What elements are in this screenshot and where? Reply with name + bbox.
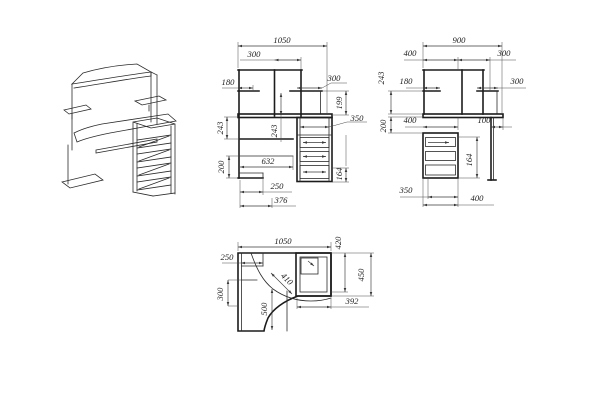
dim-arrowhead [344, 288, 347, 292]
dim-label: 180 [400, 76, 414, 86]
drawing-line [96, 139, 157, 153]
dim-arrowhead [390, 129, 393, 133]
dim-label: 243 [269, 125, 279, 138]
dim-label: 410 [279, 271, 296, 288]
isometric-view [55, 55, 205, 205]
dim-arrowhead [227, 280, 230, 284]
dim-arrowhead [390, 110, 393, 114]
dim-arrowhead [454, 126, 458, 129]
iso-drawer-pedestal [133, 118, 175, 196]
dim-label: 350 [399, 185, 414, 195]
dim-arrowhead [280, 93, 283, 97]
drawing-line [153, 193, 175, 196]
dim-arrowhead [423, 59, 427, 62]
dim-arrowhead [271, 289, 274, 293]
dim-label: 164 [334, 167, 344, 181]
iso-hutch [72, 64, 157, 150]
dim-arrowhead [344, 253, 347, 257]
front-dimensions [222, 42, 367, 208]
dim-arrowhead [228, 174, 231, 178]
front-view: 1050 300 180 300 199 350 243 243 632 200… [200, 25, 375, 225]
dim-arrowhead [227, 302, 230, 306]
dim-label: 900 [453, 35, 467, 45]
dim-arrowhead [297, 59, 301, 62]
dim-label: 300 [497, 48, 512, 58]
dim-arrowhead [322, 171, 326, 174]
drawing-line [426, 165, 456, 175]
dim-arrowhead [325, 126, 329, 129]
dim-label: 450 [356, 268, 366, 282]
dim-arrowhead [318, 87, 322, 90]
dim-label: 300 [510, 76, 525, 86]
dim-arrowhead [390, 91, 393, 95]
drawing-line [72, 64, 151, 84]
blueprint-page: 1050 300 180 300 199 350 243 243 632 200… [0, 0, 600, 400]
dim-arrowhead [370, 292, 373, 296]
drawing-line [74, 114, 176, 142]
drawing-line [301, 258, 318, 274]
dim-arrowhead [345, 111, 348, 115]
dim-label: 300 [215, 287, 225, 302]
dim-label: 200 [378, 119, 388, 133]
dim-arrowhead [300, 126, 304, 129]
drawing-line [426, 152, 456, 161]
dim-arrowhead [499, 126, 503, 129]
dim-label: 1050 [274, 236, 292, 246]
dim-arrowhead [390, 117, 393, 121]
dim-arrowhead [423, 204, 427, 207]
drawing-line [135, 96, 166, 105]
dim-arrowhead [327, 306, 331, 309]
dim-arrowhead [238, 246, 242, 249]
dim-label: 100 [478, 115, 492, 125]
dim-arrowhead [297, 306, 301, 309]
dim-arrowhead [259, 191, 263, 194]
dim-arrowhead [297, 87, 301, 90]
dim-label: 392 [345, 296, 360, 306]
dim-arrowhead [271, 326, 274, 330]
drawing-line [300, 257, 327, 292]
drawing-line [64, 105, 91, 114]
drawing-line [133, 118, 175, 128]
dim-arrowhead [476, 137, 479, 141]
dim-arrowhead [226, 117, 229, 121]
dim-arrowhead [458, 59, 462, 62]
dim-label: 400 [471, 193, 485, 203]
dim-arrowhead [345, 168, 348, 172]
dim-arrowhead [423, 126, 427, 129]
dim-label: 243 [376, 72, 386, 85]
dim-arrowhead [228, 156, 231, 160]
dim-arrowhead [240, 205, 244, 208]
dim-arrowhead [268, 205, 272, 208]
side-view: 900 400 300 243 180 300 400 100 200 164 … [375, 25, 540, 225]
drawing-line [426, 138, 456, 147]
dim-arrowhead [494, 87, 498, 90]
dim-label: 400 [404, 115, 418, 125]
dim-arrowhead [370, 253, 373, 257]
drawing-line [151, 72, 157, 75]
dim-label: 420 [333, 236, 343, 250]
dim-arrowhead [486, 59, 490, 62]
dim-label: 199 [334, 96, 344, 110]
drawing-line [133, 192, 153, 196]
dim-arrowhead [345, 91, 348, 95]
drawing-line [423, 133, 458, 178]
dim-arrowhead [477, 87, 481, 90]
plan-view: 1050 250 300 500 410 420 450 392 [205, 228, 390, 373]
dim-arrowhead [226, 135, 229, 139]
dim-arrowhead [275, 59, 279, 62]
front-labels: 1050 300 180 300 199 350 243 243 632 200… [215, 35, 364, 205]
dim-arrowhead [323, 45, 327, 48]
dim-label: 376 [274, 195, 289, 205]
side-drawing [423, 70, 503, 180]
dim-arrowhead [436, 87, 440, 90]
plan-dimensions [222, 242, 374, 330]
dim-label: 243 [215, 122, 225, 135]
dim-arrowhead [445, 141, 449, 144]
dim-label: 350 [350, 113, 365, 123]
dim-label: 164 [464, 153, 474, 167]
dim-label: 300 [327, 73, 342, 83]
dim-arrowhead [454, 59, 458, 62]
dim-label: 632 [262, 156, 276, 166]
dim-label: 1050 [273, 35, 291, 45]
dim-label: 250 [221, 252, 235, 262]
dim-arrowhead [303, 155, 307, 158]
dim-arrowhead [428, 196, 432, 199]
drawing-line [322, 83, 347, 88]
dim-arrowhead [289, 166, 293, 169]
dim-arrowhead [454, 196, 458, 199]
dim-arrowhead [259, 262, 263, 265]
plan-drawing [238, 253, 331, 331]
dim-label: 250 [271, 181, 285, 191]
front-drawing [238, 70, 332, 182]
dim-arrowhead [322, 141, 326, 144]
dim-arrowhead [240, 166, 244, 169]
dim-arrowhead [303, 171, 307, 174]
dim-arrowhead [423, 45, 427, 48]
dim-arrowhead [345, 178, 348, 182]
dim-arrowhead [454, 204, 458, 207]
dim-label: 200 [216, 160, 226, 174]
dim-label: 400 [404, 48, 418, 58]
dim-arrowhead [238, 45, 242, 48]
dim-arrowhead [249, 87, 253, 90]
dim-label: 300 [247, 49, 262, 59]
drawing-line [74, 72, 151, 88]
dim-arrowhead [303, 141, 307, 144]
dim-arrowhead [240, 191, 244, 194]
dim-label: 500 [259, 302, 269, 316]
dim-arrowhead [498, 45, 502, 48]
dim-arrowhead [327, 246, 331, 249]
dim-arrowhead [322, 155, 326, 158]
dim-arrowhead [476, 174, 479, 178]
dim-label: 180 [222, 77, 236, 87]
